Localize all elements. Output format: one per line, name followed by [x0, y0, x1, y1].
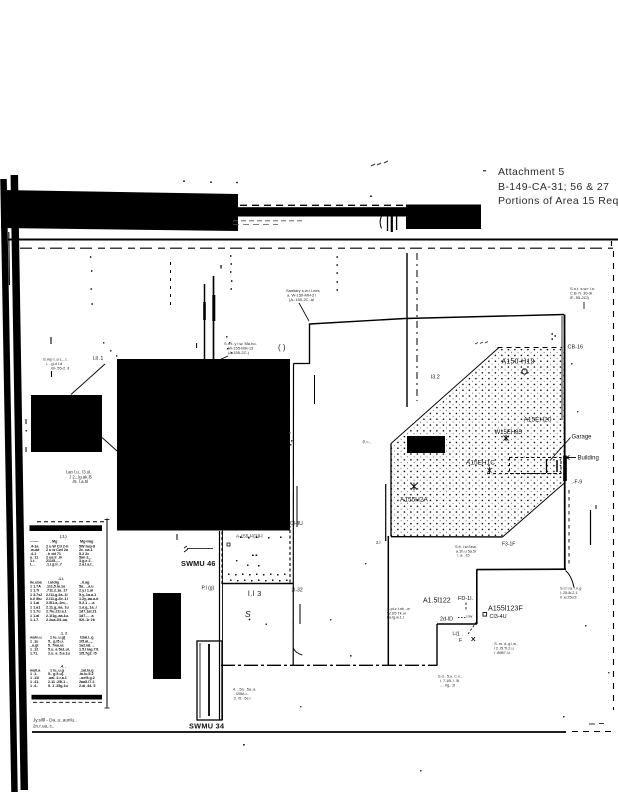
svg-text:.1.l.: .1.l. — [58, 577, 64, 581]
svg-text:. Mg: . Mg — [50, 539, 57, 543]
svg-text:-------: ------- — [30, 539, 39, 543]
svg-text:1 .4..: 1 .4.. — [30, 684, 38, 688]
svg-text:( ): ( ) — [278, 343, 286, 352]
svg-text:S: S — [245, 609, 251, 619]
svg-text:2n.r.ua,.c..: 2n.r.ua,.c.. — [33, 723, 54, 728]
svg-text:FD-1l.: FD-1l. — [458, 596, 473, 602]
svg-text:2.l: 2.l — [376, 540, 380, 545]
svg-text:lF-.55-2Cl): lF-.55-2Cl) — [570, 295, 590, 300]
svg-text:l. 25-llr.2.1: l. 25-llr.2.1 — [560, 591, 578, 595]
svg-text:P.l (g): P.l (g) — [202, 586, 215, 592]
svg-text:S.d.. 5.u. C.v...: S.d.. 5.u. C.v... — [438, 675, 463, 679]
svg-text:S.l.t l.w. l.n.g: S.l.t l.w. l.n.g — [560, 587, 581, 591]
svg-text:A15EH20: A15EH20 — [524, 417, 552, 424]
svg-text:.1.l.g.lr..7: .1.l.g.lr..7 — [46, 563, 62, 567]
svg-text:. S..m. d..g l.w..: . S..m. d..g l.w.. — [492, 642, 518, 646]
svg-text:2.2ua.2l1.ua.: 2.2ua.2l1.ua. — [46, 618, 68, 622]
svg-text:SWMU 46: SWMU 46 — [181, 559, 216, 568]
svg-text:2d-lD: 2d-lD — [440, 617, 453, 623]
svg-text:l-l1 .: l-l1 . — [453, 632, 464, 638]
svg-text:2.al .44. 5: 2.al .44. 5 — [79, 684, 95, 688]
svg-text:t.. .: t.. . — [30, 563, 35, 567]
svg-text:52l..1r 2k: 52l..1r 2k — [79, 618, 96, 622]
svg-text:2.a.l.a.t..: 2.a.l.a.t.. — [79, 563, 94, 567]
svg-text:A1.5l122: A1.5l122 — [423, 598, 451, 605]
svg-text:B-149-CA-31; 56 & 27: B-149-CA-31; 56 & 27 — [498, 181, 609, 193]
svg-text:Portions of Area 15 Req: Portions of Area 15 Req — [498, 195, 618, 207]
svg-text:Jy.s/lll - Da..u..aunlu..: Jy.s/lll - Da..u..aunlu.. — [33, 718, 77, 723]
svg-text:.-F-9: .-F-9 — [572, 480, 583, 486]
svg-text:F: F — [459, 638, 462, 644]
svg-text:l3.2: l3.2 — [431, 375, 440, 381]
svg-text:.l5. l.a.5l: .l5. l.a.5l — [72, 479, 88, 484]
svg-text:l.ll .1: l.ll .1 — [93, 356, 104, 362]
svg-text:Garage: Garage — [572, 435, 593, 441]
svg-text:(.1.): (.1.) — [60, 535, 67, 539]
svg-text:.W-.55-2. ll: .W-.55-2. ll — [50, 366, 69, 371]
svg-text:F3-1F: F3-1F — [502, 542, 515, 548]
svg-text:SWMU 34: SWMU 34 — [189, 722, 225, 731]
svg-text:l. a- .15: l. a- .15 — [457, 554, 470, 558]
svg-text:l 2..l5 Tl.2.u: l 2..l5 Tl.2.u — [494, 647, 514, 651]
svg-text:Attachment 5: Attachment 5 — [498, 166, 565, 178]
svg-text:1.71.: 1.71. — [30, 652, 38, 656]
svg-text:P.=-.: P.=-. — [363, 440, 371, 445]
svg-text:W15EH85: W15EH85 — [495, 430, 523, 436]
svg-text:.. ..llg.. 2l: .. ..llg.. 2l — [440, 684, 455, 688]
svg-text:1.1.7.: 1.1.7. — [30, 618, 39, 622]
svg-text:Cl3-4U: Cl3-4U — [490, 614, 507, 620]
svg-text:1l5.7g2. l5: 1l5.7g2. l5 — [79, 652, 97, 656]
svg-text:l .l5ll57.1l: l .l5ll57.1l — [494, 651, 510, 655]
svg-text:l.lw: l.lw — [467, 614, 473, 619]
svg-text:A15EH1C: A15EH1C — [466, 460, 495, 467]
svg-text:. l2l5A.l..: . l2l5A.l.. — [234, 692, 249, 696]
svg-text:A155l123F: A155l123F — [488, 604, 523, 613]
svg-text:A-155-l-l(2)l-l: A-155-l-l(2)l-l — [236, 534, 263, 539]
svg-text:5. 1 .25g.1u: 5. 1 .25g.1u — [48, 684, 69, 688]
svg-text:CB-16: CB-16 — [568, 345, 584, 351]
svg-text:ll .w.25l.l3: ll .w.25l.l3 — [560, 596, 576, 600]
svg-text:A150-H19: A150-H19 — [502, 359, 535, 366]
svg-text:l. 7.1l5. l. 5l: l. 7.1l5. l. 5l — [440, 679, 459, 683]
svg-text:2.u. a .5.a.1u: 2.u. a .5.a.1u — [48, 652, 71, 656]
svg-text:(A-.150-2C..al: (A-.150-2C..al — [289, 297, 314, 302]
svg-text:Mg-lrag: Mg-lrag — [80, 539, 93, 543]
svg-text:4. ..5a. .5a..a.: 4. ..5a. .5a..a. — [233, 688, 256, 692]
svg-text:l.l 3: l.l 3 — [248, 589, 262, 598]
svg-text:2. l5. .5e.l: 2. l5. .5e.l — [234, 697, 251, 701]
svg-text:Cl-3U: Cl-3U — [290, 521, 303, 527]
svg-text:A155H2A: A155H2A — [400, 497, 428, 504]
svg-text:l.a.lg.w.1.l: l.a.lg.w.1.l — [387, 616, 404, 620]
svg-text:Building: Building — [578, 456, 599, 462]
svg-text:2l-32: 2l-32 — [292, 588, 303, 594]
